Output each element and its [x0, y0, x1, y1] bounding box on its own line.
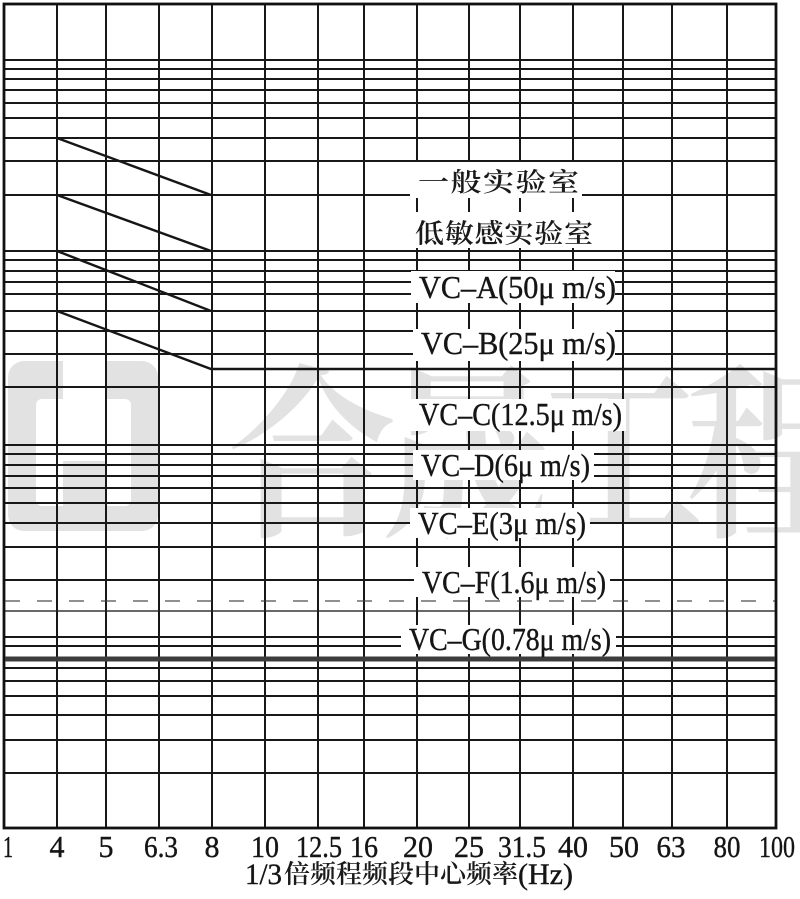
svg-text:16: 16: [350, 829, 378, 864]
svg-text:5: 5: [99, 829, 114, 864]
svg-text:12.5: 12.5: [296, 829, 342, 864]
svg-text:VC–F(1.6μ m/s): VC–F(1.6μ m/s): [422, 564, 606, 600]
svg-text:100: 100: [759, 829, 795, 864]
svg-text:VC–D(6μ m/s): VC–D(6μ m/s): [421, 447, 590, 483]
svg-text:8: 8: [205, 829, 220, 864]
svg-text:1/3: 1/3: [245, 858, 282, 891]
svg-text:VC–C(12.5μ m/s): VC–C(12.5μ m/s): [419, 396, 622, 432]
svg-text:VC–E(3μ m/s): VC–E(3μ m/s): [418, 505, 586, 541]
svg-text:VC–B(25μ m/s): VC–B(25μ m/s): [421, 325, 616, 361]
svg-text:4: 4: [50, 829, 65, 864]
svg-text:20: 20: [403, 829, 433, 864]
svg-text:VC–G(0.78μ m/s): VC–G(0.78μ m/s): [409, 621, 611, 657]
svg-text:6.3: 6.3: [144, 829, 178, 864]
svg-text:50: 50: [609, 829, 639, 864]
svg-text:VC–A(50μ m/s): VC–A(50μ m/s): [419, 269, 616, 305]
svg-text:1: 1: [3, 829, 13, 864]
svg-text:63: 63: [657, 829, 686, 864]
svg-text:80: 80: [714, 829, 741, 864]
svg-text:(Hz): (Hz): [518, 858, 573, 891]
svg-text:25: 25: [454, 829, 484, 864]
